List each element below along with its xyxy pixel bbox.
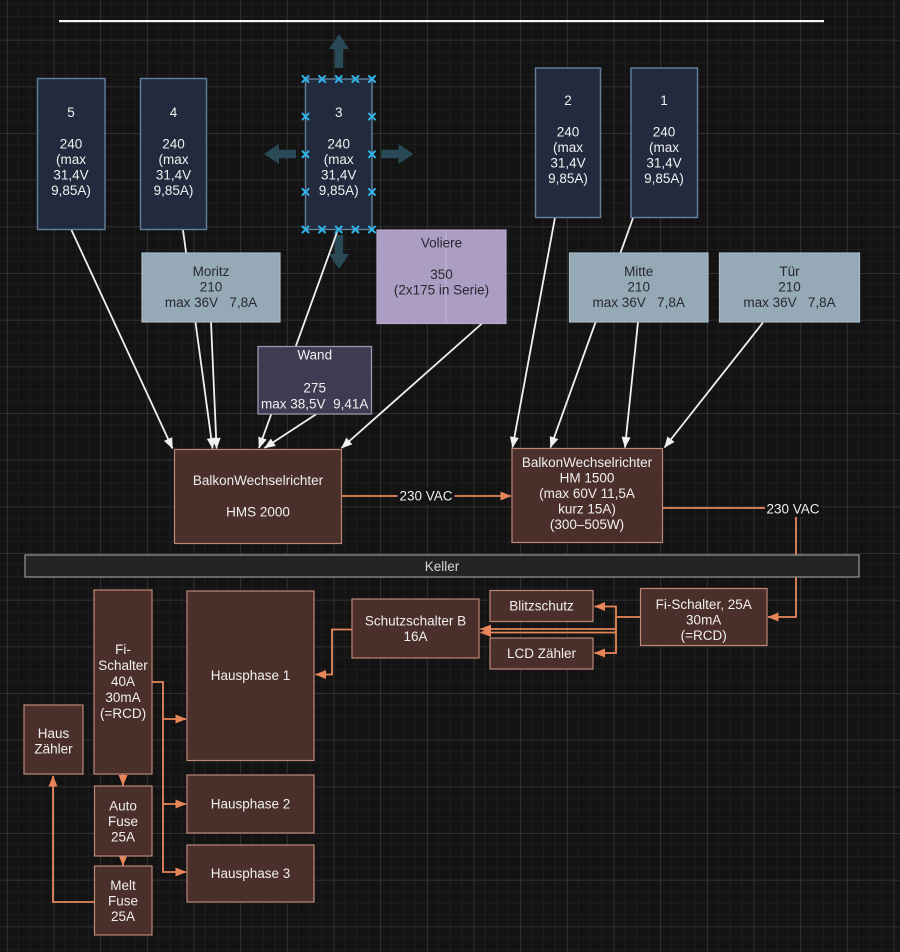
svg-text:(2x175 in Serie): (2x175 in Serie) — [394, 283, 489, 298]
svg-text:4: 4 — [170, 105, 178, 120]
svg-text:Mitte: Mitte — [624, 264, 653, 279]
svg-text:(max: (max — [56, 152, 86, 167]
svg-text:(max: (max — [553, 140, 583, 155]
svg-text:3: 3 — [335, 105, 343, 120]
svg-text:9,85A): 9,85A) — [51, 183, 91, 198]
svg-text:30mA: 30mA — [686, 613, 721, 628]
svg-text:5: 5 — [67, 105, 75, 120]
svg-text:Schutzschalter B: Schutzschalter B — [365, 614, 466, 629]
svg-text:HMS 2000: HMS 2000 — [226, 505, 290, 520]
svg-text:BalkonWechselrichter: BalkonWechselrichter — [522, 455, 653, 470]
svg-text:Schalter: Schalter — [98, 658, 148, 673]
svg-text:max 36V 7,8A: max 36V 7,8A — [165, 295, 257, 310]
svg-text:40A: 40A — [111, 674, 135, 689]
svg-text:Fuse: Fuse — [108, 894, 138, 909]
svg-text:Haus: Haus — [38, 726, 70, 741]
svg-text:Blitzschutz: Blitzschutz — [509, 599, 574, 614]
svg-text:16A: 16A — [403, 629, 427, 644]
svg-text:BalkonWechselrichter: BalkonWechselrichter — [193, 473, 324, 488]
svg-text:(=RCD): (=RCD) — [100, 706, 146, 721]
svg-text:Wand: Wand — [297, 348, 332, 363]
svg-text:Hausphase 1: Hausphase 1 — [211, 668, 291, 683]
svg-text:Fi-: Fi- — [115, 642, 131, 657]
svg-text:25A: 25A — [111, 909, 135, 924]
svg-text:240: 240 — [557, 125, 580, 140]
svg-text:210: 210 — [200, 280, 223, 295]
svg-text:kurz 15A): kurz 15A) — [558, 502, 616, 517]
svg-text:31,4V: 31,4V — [321, 168, 356, 183]
svg-text:31,4V: 31,4V — [156, 168, 191, 183]
svg-text:(300–505W): (300–505W) — [550, 517, 624, 532]
svg-text:9,85A): 9,85A) — [319, 183, 359, 198]
svg-text:240: 240 — [162, 137, 185, 152]
svg-text:Zähler: Zähler — [34, 742, 73, 757]
svg-text:(max: (max — [324, 152, 354, 167]
svg-text:max 36V 7,8A: max 36V 7,8A — [743, 295, 835, 310]
svg-text:Keller: Keller — [425, 559, 460, 574]
svg-text:Tür: Tür — [779, 264, 800, 279]
svg-text:230 VAC: 230 VAC — [399, 489, 452, 504]
svg-text:Fuse: Fuse — [108, 814, 138, 829]
svg-text:210: 210 — [627, 280, 650, 295]
svg-text:Fi-Schalter, 25A: Fi-Schalter, 25A — [656, 597, 752, 612]
svg-text:Voliere: Voliere — [421, 236, 462, 251]
svg-text:Melt: Melt — [110, 878, 136, 893]
svg-text:31,4V: 31,4V — [550, 156, 585, 171]
svg-text:240: 240 — [653, 125, 676, 140]
svg-text:Auto: Auto — [109, 799, 137, 814]
svg-text:max 36V 7,8A: max 36V 7,8A — [593, 295, 685, 310]
svg-text:240: 240 — [327, 137, 350, 152]
svg-text:(max: (max — [159, 152, 189, 167]
svg-text:(=RCD): (=RCD) — [681, 628, 727, 643]
svg-text:Moritz: Moritz — [193, 264, 230, 279]
svg-text:(max: (max — [649, 140, 679, 155]
svg-text:HM 1500: HM 1500 — [560, 471, 615, 486]
svg-text:Hausphase 2: Hausphase 2 — [211, 797, 291, 812]
svg-text:(max 60V 11,5A: (max 60V 11,5A — [539, 486, 635, 501]
svg-text:350: 350 — [430, 267, 453, 282]
svg-text:31,4V: 31,4V — [646, 156, 681, 171]
svg-text:Hausphase 3: Hausphase 3 — [211, 866, 291, 881]
svg-text:2: 2 — [564, 93, 572, 108]
svg-text:230 VAC: 230 VAC — [766, 502, 819, 517]
svg-text:31,4V: 31,4V — [53, 168, 88, 183]
svg-text:1: 1 — [660, 93, 668, 108]
svg-text:9,85A): 9,85A) — [154, 183, 194, 198]
svg-text:LCD Zähler: LCD Zähler — [507, 646, 577, 661]
svg-text:210: 210 — [778, 280, 801, 295]
svg-text:275: 275 — [303, 381, 326, 396]
svg-text:9,85A): 9,85A) — [644, 171, 684, 186]
svg-text:30mA: 30mA — [105, 690, 140, 705]
svg-text:max 38,5V 9,41A: max 38,5V 9,41A — [261, 397, 368, 412]
svg-text:240: 240 — [60, 137, 83, 152]
svg-text:9,85A): 9,85A) — [548, 171, 588, 186]
svg-text:25A: 25A — [111, 830, 135, 845]
